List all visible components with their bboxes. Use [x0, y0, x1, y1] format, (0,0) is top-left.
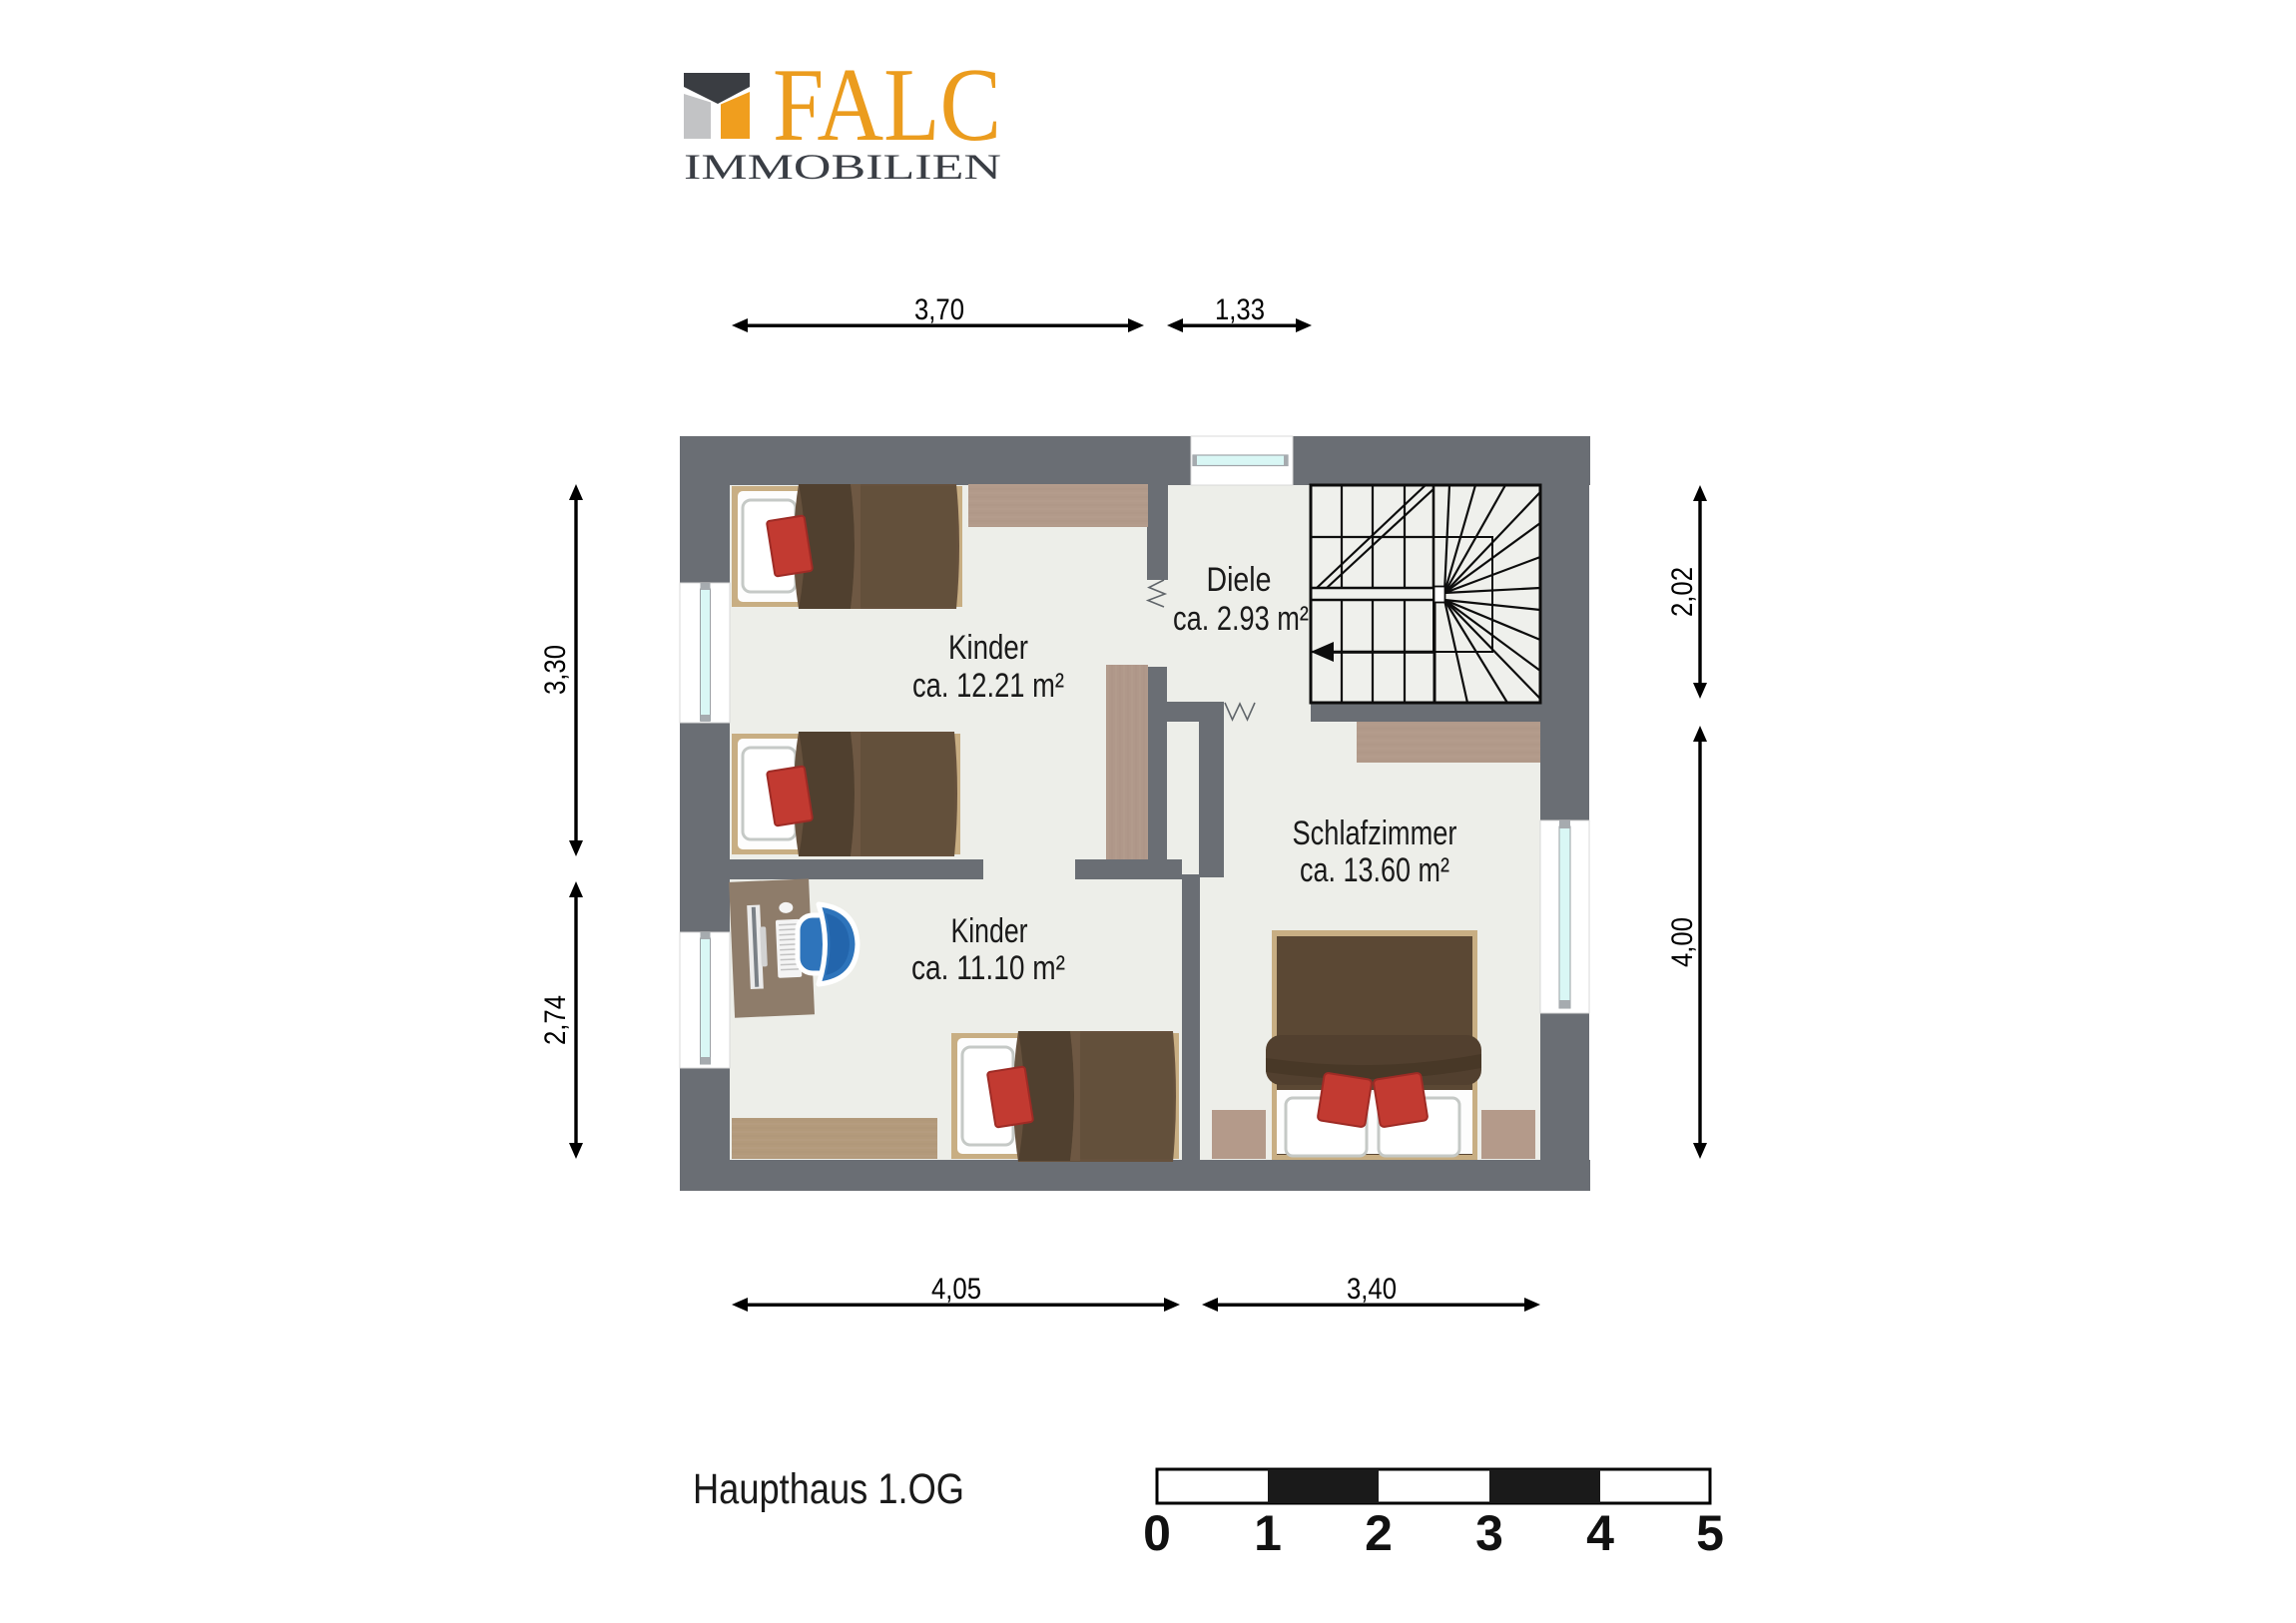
svg-text:Diele: Diele: [1207, 561, 1272, 599]
svg-text:4: 4: [1586, 1505, 1614, 1561]
svg-text:ca. 11.10 m²: ca. 11.10 m²: [911, 949, 1065, 987]
svg-text:Kinder: Kinder: [951, 912, 1028, 950]
svg-text:3,30: 3,30: [539, 645, 572, 695]
svg-text:ca. 13.60 m²: ca. 13.60 m²: [1300, 851, 1449, 889]
svg-text:Schlafzimmer: Schlafzimmer: [1293, 814, 1457, 852]
svg-text:2: 2: [1365, 1505, 1393, 1561]
svg-text:2,02: 2,02: [1666, 567, 1699, 617]
svg-text:IMMOBILIEN: IMMOBILIEN: [684, 147, 1001, 187]
svg-text:1,33: 1,33: [1215, 293, 1265, 326]
svg-text:3,40: 3,40: [1347, 1273, 1397, 1306]
svg-text:Kinder: Kinder: [948, 629, 1028, 667]
svg-text:FALC: FALC: [773, 46, 1001, 163]
svg-text:ca. 2.93 m²: ca. 2.93 m²: [1173, 600, 1309, 638]
svg-text:0: 0: [1143, 1505, 1171, 1561]
svg-text:2,74: 2,74: [539, 995, 572, 1045]
svg-text:5: 5: [1696, 1505, 1724, 1561]
svg-text:Haupthaus 1.OG: Haupthaus 1.OG: [693, 1465, 964, 1513]
svg-text:3,70: 3,70: [914, 293, 964, 326]
svg-text:ca. 12.21 m²: ca. 12.21 m²: [912, 667, 1064, 705]
svg-text:4,00: 4,00: [1666, 917, 1699, 967]
svg-text:1: 1: [1254, 1505, 1282, 1561]
svg-text:4,05: 4,05: [931, 1273, 981, 1306]
svg-text:3: 3: [1475, 1505, 1503, 1561]
